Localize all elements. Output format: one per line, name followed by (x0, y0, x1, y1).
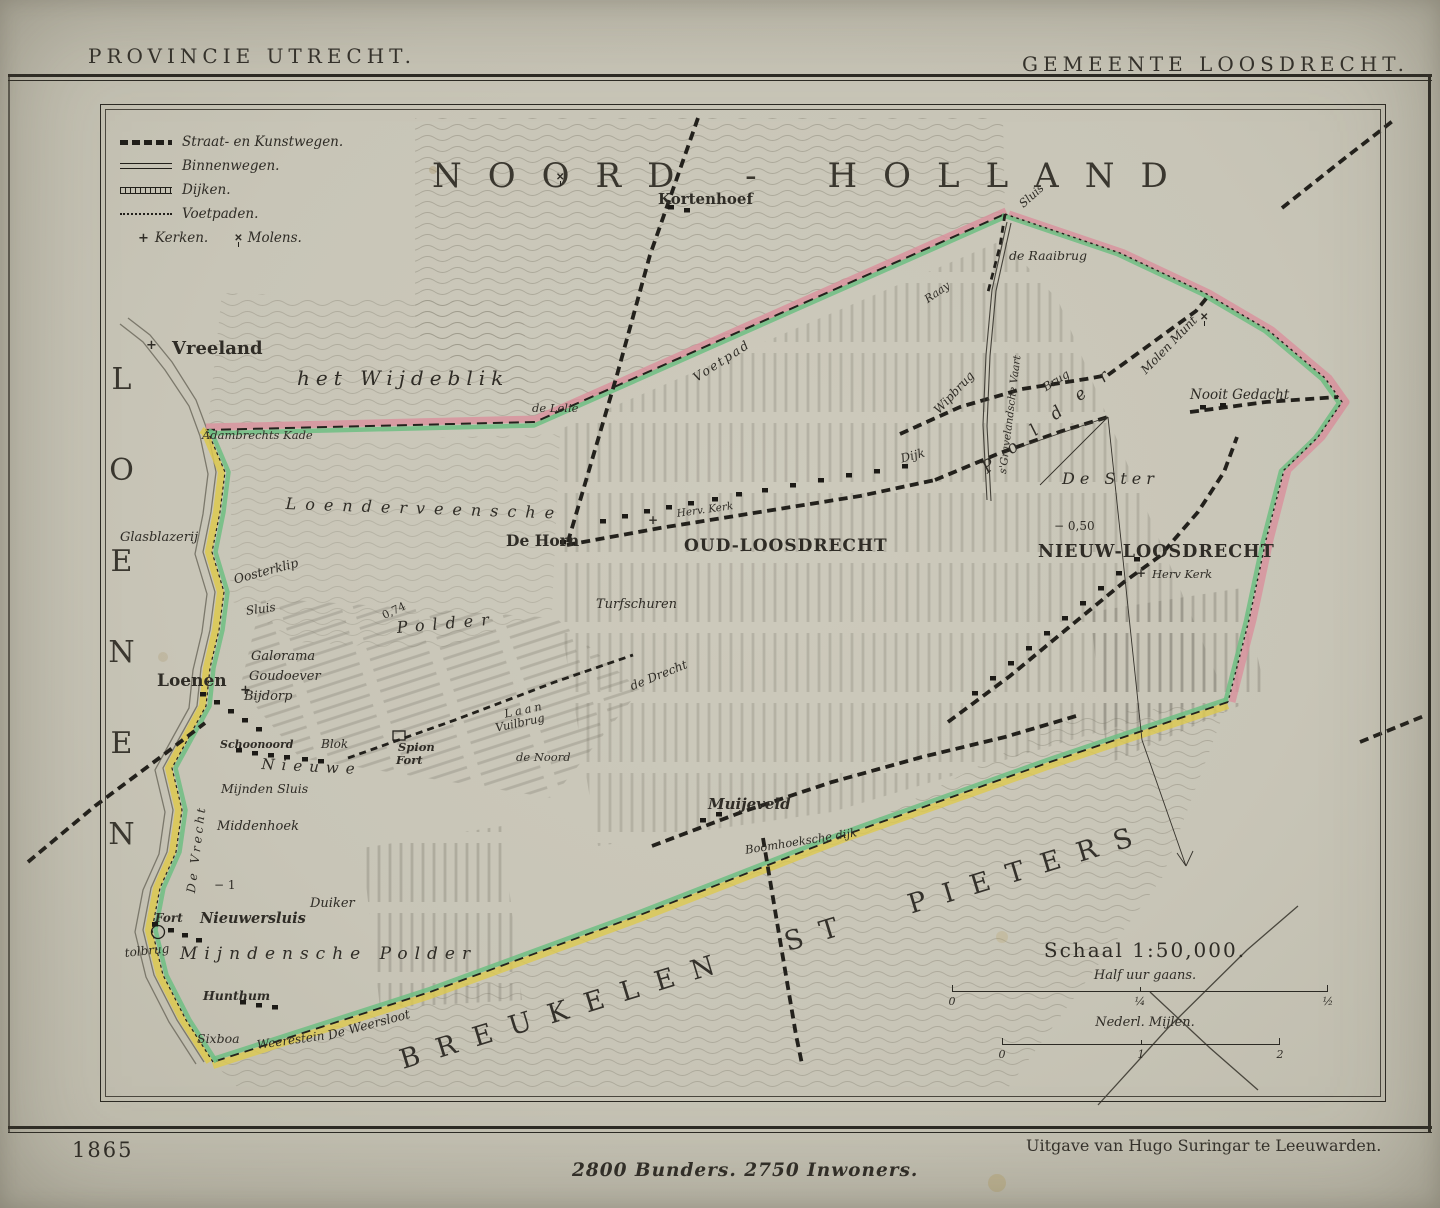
map-label-kortenhoef: Kortenhoef (658, 190, 753, 208)
legend-label: Binnenwegen. (182, 158, 279, 174)
map-label-spion: Spion (398, 740, 435, 754)
map-label-bijdorp: Bijdorp (244, 689, 292, 704)
legend-label: Straat- en Kunstwegen. (182, 134, 343, 150)
map-label-boomhoeksche-dijk: Boomhoeksche dijk (744, 825, 858, 857)
map-label-nooit-gedacht: Nooit Gedacht (1190, 387, 1289, 403)
map-label-oosterklip: Oosterklip (232, 555, 300, 587)
church-oud-loosdrecht-icon: + (648, 513, 658, 527)
scale-title: Schaal 1:50,000. (940, 938, 1350, 962)
map-label-vreeland: Vreeland (172, 338, 263, 359)
tick-label: 0 (999, 1048, 1006, 1061)
scale-bar1-ticks: 0 ¼ ½ (952, 995, 1328, 1009)
map-label-duiker: Duiker (310, 896, 355, 911)
map-label-muijeveld: Muijeveld (708, 795, 791, 813)
map-label-goudoever: Goudoever (249, 669, 321, 684)
scale-bar2-label: Nederl. Mijlen. (940, 1015, 1350, 1030)
map-label-nieuwe: Nieuwe (261, 755, 362, 778)
map-label-schoonoord: Schoonoord (220, 738, 293, 751)
scale-bar1-label: Half uur gaans. (940, 968, 1350, 983)
scale-bar-half-uur (952, 987, 1328, 995)
outer-rule-bottom (8, 1126, 1432, 1129)
map-label-voetpad: Voetpad (690, 336, 753, 384)
scale-block: Schaal 1:50,000. Half uur gaans. 0 ¼ ½ N… (940, 938, 1350, 1062)
map-label-de-horn: De Horn (506, 531, 579, 550)
map-label-dijk: Dijk (899, 446, 926, 466)
tick-label: 0 (949, 995, 956, 1008)
mill-munt-icon: ✕ (1200, 312, 1208, 323)
map-label-mijnden-sluis: Mijnden Sluis (221, 781, 308, 796)
map-label-weerestein: Weerestein (256, 1029, 325, 1052)
scale-bar-mijlen (1002, 1040, 1280, 1048)
map-label-de-noord: de Noord (516, 750, 571, 764)
church-icon: + (138, 231, 149, 246)
map-label-adambrechts-kade: Adambrechts Kade (202, 428, 313, 442)
map-label-turfschuren: Turfschuren (596, 597, 677, 612)
church-loenen-icon: + (240, 683, 251, 698)
tick-label: 2 (1277, 1048, 1284, 1061)
map-label-de-vrecht: De Vrecht (184, 804, 209, 893)
map-sheet: PROVINCIE UTRECHT. GEMEENTE LOOSDRECHT. … (0, 0, 1440, 1208)
voetpaden-line-icon (120, 213, 172, 215)
map-label-tolbrug: tolbrug (124, 941, 170, 960)
map-label-hunthum: Hunthum (203, 988, 270, 1003)
scale-bar2-ticks: 0 1 2 (1002, 1048, 1280, 1062)
map-label-loenderveensche: Loenderveensche (285, 494, 563, 523)
map-label-herv-kerk-nieuw: Herv Kerk (1152, 567, 1212, 581)
legend-label-kerken: Kerken. (155, 230, 208, 246)
tick-label: ½ (1323, 995, 1334, 1008)
map-label-molen-munt: Molen Munt (1138, 313, 1200, 376)
legend: Straat- en Kunstwegen. Binnenwegen. Dijk… (120, 130, 343, 250)
outer-rule-top-thin (8, 80, 1432, 81)
legend-label: Dijken. (182, 182, 230, 198)
map-label-min-050: − 0,50 (1054, 519, 1095, 533)
map-label-raay: Raay (922, 279, 952, 306)
map-label-mijndensche-polder: Mijndensche Polder (180, 944, 477, 964)
map-label-nieuwersluis: Nieuwersluis (200, 910, 306, 927)
map-label-het-wijdeblik: het Wijdeblik (297, 366, 509, 390)
map-label-nieuw-loosdrecht: NIEUW-LOOSDRECHT (1038, 542, 1275, 562)
map-label-noord-holland: NOORD - HOLLAND (432, 156, 1194, 196)
map-year: 1865 (72, 1138, 133, 1162)
outer-rule-left (8, 74, 10, 1133)
legend-row-voetpaden: Voetpaden. (120, 202, 343, 226)
outer-rule-bottom-thin (8, 1132, 1432, 1133)
map-label-wipbrug: Wipbrug (931, 369, 977, 417)
dijken-line-icon (120, 187, 172, 194)
map-label-galorama: Galorama (251, 649, 315, 664)
map-label-blok: Blok (321, 737, 348, 751)
legend-row-binnenwegen: Binnenwegen. (120, 154, 343, 178)
publisher-imprint: Uitgave van Hugo Suringar te Leeuwarden. (1026, 1136, 1381, 1155)
map-label-de-drecht: de Drecht (628, 657, 689, 693)
tick-label: 1 (1138, 1048, 1145, 1061)
title-province: PROVINCIE UTRECHT. (88, 44, 416, 68)
area-population-stats: 2800 Bunders. 2750 Inwoners. (572, 1160, 918, 1181)
legend-row-kerken-molens: + Kerken. ✕ Molens. (120, 226, 343, 250)
church-nieuw-loosdrecht-icon: + (1136, 566, 1146, 580)
map-label-loenen: Loenen (157, 671, 227, 691)
map-label-fort-spion: Fort (396, 753, 423, 767)
map-label-loenen-groot: LOENEN (104, 362, 139, 908)
straatwegen-line-icon (120, 140, 172, 145)
tick-label: ¼ (1135, 995, 1146, 1008)
legend-label-molens: Molens. (248, 230, 302, 246)
map-label-de-weersloot: De Weersloot (326, 1006, 411, 1042)
windmill-icon: ✕ (234, 233, 242, 244)
map-label-min-1: − 1 (214, 878, 236, 892)
map-label-oud-loosdrecht: OUD-LOOSDRECHT (684, 536, 888, 556)
map-label-glasblazerij: Glasblazerij (120, 530, 198, 545)
map-label-de-raaibrug: de Raaibrug (1009, 248, 1087, 263)
church-vreeland-icon: + (146, 338, 157, 353)
map-label-sluis-loenen: Sluis (245, 600, 276, 618)
binnenwegen-line-icon (120, 163, 172, 169)
legend-row-dijken: Dijken. (120, 178, 343, 202)
legend-row-straatwegen: Straat- en Kunstwegen. (120, 130, 343, 154)
outer-rule-right (1428, 74, 1431, 1133)
map-label-middenhoek: Middenhoek (217, 819, 299, 834)
title-municipality: GEMEENTE LOOSDRECHT. (1022, 52, 1409, 76)
map-label-brug: Brug (1040, 367, 1072, 394)
map-label-de-lelie: de Lelie (532, 401, 578, 415)
map-label-polder-mid: Polder (396, 609, 498, 637)
map-label-fort-nieuwersluis: Fort (155, 911, 183, 925)
map-label-de-ster: De Ster (1062, 469, 1159, 488)
mill-kortenhoef-icon: ✕ (556, 172, 564, 183)
legend-label: Voetpaden. (182, 206, 258, 222)
map-label-sixboa: Sixboa (197, 1031, 240, 1046)
map-label-herv-kerk-oud: Herv. Kerk (676, 500, 734, 520)
